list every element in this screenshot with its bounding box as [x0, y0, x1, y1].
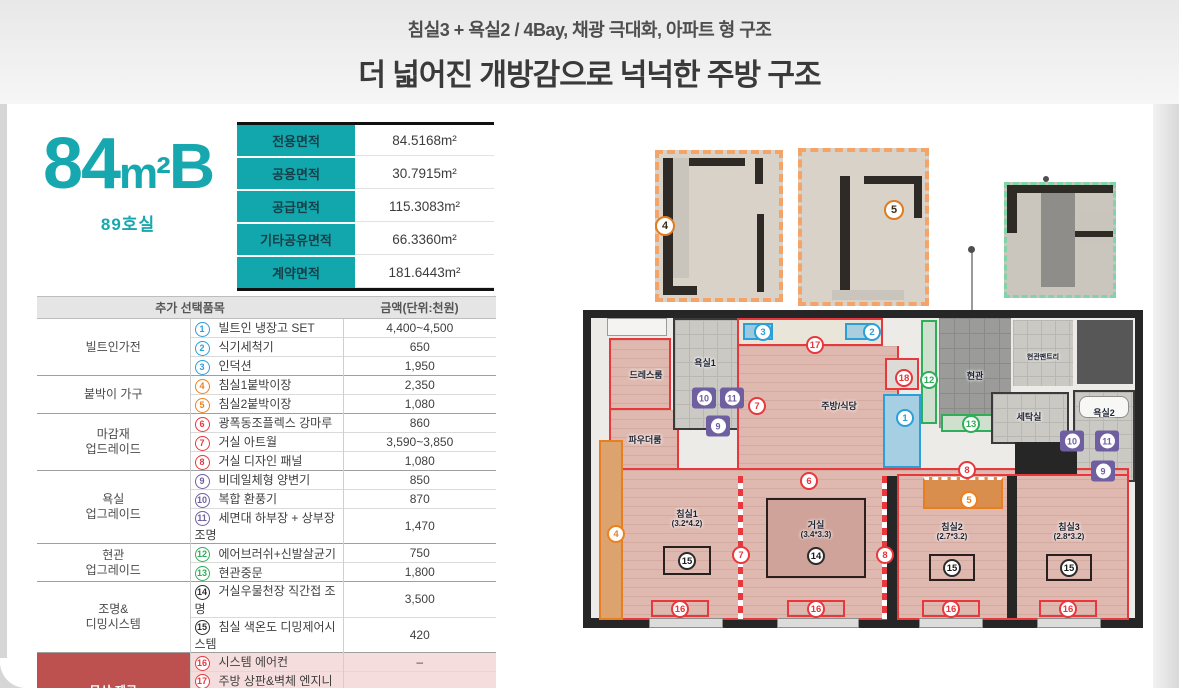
plan-marker-15: 15	[943, 559, 961, 577]
plan-marker-8: 8	[958, 461, 976, 479]
option-price: 650	[343, 338, 496, 357]
plan-marker-4: 4	[607, 525, 625, 543]
option-label: 시스템 에어컨	[219, 655, 289, 669]
option-item-cell: 9비데일체형 양변기	[190, 471, 343, 490]
plan-marker-13: 13	[962, 415, 980, 433]
pantry-detail-thumb	[1004, 182, 1116, 298]
marker-5-thumb: 5	[884, 200, 904, 220]
option-item-cell: 11세면대 하부장 + 상부장 조명	[190, 509, 343, 544]
option-price: 3,590~3,850	[343, 433, 496, 452]
page-title: 더 넓어진 개방감으로 넉넉한 주방 구조	[0, 50, 1179, 94]
option-item-cell: 1빌트인 냉장고 SET	[190, 319, 343, 338]
option-label: 침실2붙박이장	[219, 397, 292, 411]
area-table-row: 전용면적84.5168m²	[237, 125, 494, 156]
plan-marker-16: 16	[807, 600, 825, 618]
area-table-row: 기타공유면적66.3360m²	[237, 224, 494, 255]
option-number-badge: 2	[195, 341, 210, 356]
option-number-badge: 1	[195, 322, 210, 337]
option-group-label: 마감재 업드레이드	[37, 414, 190, 471]
option-price: 750	[343, 544, 496, 563]
option-price: 1,950	[343, 357, 496, 376]
plan-marker-1: 1	[896, 409, 914, 427]
option-price: –	[343, 652, 496, 671]
option-number-badge: 5	[195, 398, 210, 413]
option-item-cell: 13현관중문	[190, 563, 343, 582]
option-price: 1,080	[343, 452, 496, 471]
option-number-badge: 17	[195, 674, 210, 688]
plan-marker-17: 17	[806, 336, 824, 354]
option-number-badge: 6	[195, 417, 210, 432]
area-value: 30.7915m²	[355, 158, 494, 189]
option-row: 현관 업그레이드12에어브러쉬+신발살균기750	[37, 544, 496, 563]
option-price: 870	[343, 490, 496, 509]
option-number-badge: 8	[195, 455, 210, 470]
plan-marker-8: 8	[876, 546, 894, 564]
option-row: 붙박이 가구4침실1붙박이장2,350	[37, 376, 496, 395]
option-number-badge: 3	[195, 360, 210, 375]
option-label: 식기세척기	[219, 340, 274, 354]
option-number-badge: 14	[195, 585, 210, 600]
options-table-wrap: 추가 선택품목 금액(단위:천원) 빌트인가전1빌트인 냉장고 SET4,400…	[37, 296, 496, 688]
unit-size-unit: m²	[119, 149, 169, 198]
option-row: 조명& 디밍시스템14거실우물천장 직간접 조명3,500	[37, 582, 496, 617]
unit-size-type: B	[169, 130, 213, 202]
option-number-badge: 11	[195, 511, 210, 526]
closet-detail-thumb-bedroom2: 5	[798, 148, 929, 306]
page: { "header": { "subtitle": "침실3 + 욕실2 / 4…	[0, 0, 1179, 688]
unit-size: 84m²B	[28, 128, 228, 200]
area-label: 공용면적	[237, 158, 355, 189]
plan-marker-16: 16	[1059, 600, 1077, 618]
room-label: 현관팬트리	[1027, 354, 1059, 362]
area-table: 전용면적84.5168m²공용면적30.7915m²공급면적115.3083m²…	[237, 122, 494, 291]
unit-room-number: 89호실	[28, 210, 228, 235]
area-value: 181.6443m²	[355, 257, 494, 288]
option-group-label: 무상 제공 품목	[37, 652, 190, 688]
options-col-price-header: 금액(단위:천원)	[343, 297, 496, 319]
room-label: 주방/식당	[821, 401, 857, 411]
closet-detail-thumb-bedroom1: 4	[655, 150, 783, 302]
option-item-cell: 12에어브러쉬+신발살균기	[190, 544, 343, 563]
option-price: 860	[343, 414, 496, 433]
room-label: 거실(3.4*3.3)	[801, 520, 832, 540]
room-label: 세탁실	[1017, 412, 1042, 422]
option-item-cell: 8거실 디자인 패널	[190, 452, 343, 471]
option-label: 침실1붙박이장	[219, 378, 292, 392]
option-number-badge: 4	[195, 379, 210, 394]
plan-marker-10: 10	[1060, 431, 1084, 452]
option-price: 2,350	[343, 376, 496, 395]
option-label: 주방 상판&벽체 엔지니어드 스톤	[195, 674, 333, 688]
area-table-row: 계약면적181.6443m²	[237, 257, 494, 288]
unit-block: 84m²B 89호실	[28, 128, 228, 235]
room-label: 침실2(2.7*3.2)	[937, 522, 968, 542]
option-label: 광폭동조플렉스 강마루	[219, 416, 333, 430]
plan-marker-16: 16	[942, 600, 960, 618]
option-price: 850	[343, 471, 496, 490]
option-number-badge: 10	[195, 493, 210, 508]
option-row: 빌트인가전1빌트인 냉장고 SET4,400~4,500	[37, 319, 496, 338]
room-label: 현관	[967, 371, 984, 381]
option-label: 거실 디자인 패널	[219, 454, 303, 468]
option-item-cell: 14거실우물천장 직간접 조명	[190, 582, 343, 617]
option-item-cell: 4침실1붙박이장	[190, 376, 343, 395]
options-table: 추가 선택품목 금액(단위:천원) 빌트인가전1빌트인 냉장고 SET4,400…	[37, 296, 496, 688]
plan-marker-15: 15	[1060, 559, 1078, 577]
option-item-cell: 15침실 색온도 디밍제어시스템	[190, 617, 343, 652]
option-label: 빌트인 냉장고 SET	[219, 321, 315, 335]
header-subtitle: 침실3 + 욕실2 / 4Bay, 채광 극대화, 아파트 형 구조	[0, 16, 1179, 42]
option-price: 1,080	[343, 395, 496, 414]
option-number-badge: 12	[195, 547, 210, 562]
area-label: 전용면적	[237, 125, 355, 156]
option-item-cell: 7거실 아트월	[190, 433, 343, 452]
plan-marker-5: 5	[960, 491, 978, 509]
option-group-label: 욕실 업그레이드	[37, 471, 190, 544]
area-table-row: 공용면적30.7915m²	[237, 158, 494, 189]
area-table-row: 공급면적115.3083m²	[237, 191, 494, 222]
marker-4-thumb: 4	[655, 216, 675, 236]
option-label: 복합 환풍기	[219, 492, 278, 506]
option-label: 침실 색온도 디밍제어시스템	[195, 620, 336, 651]
option-item-cell: 3인덕션	[190, 357, 343, 376]
plan-marker-10: 10	[692, 388, 716, 409]
option-row: 무상 제공 품목16시스템 에어컨–	[37, 652, 496, 671]
pin-icon	[968, 246, 975, 253]
plan-marker-9: 9	[706, 416, 730, 437]
option-number-badge: 9	[195, 474, 210, 489]
option-item-cell: 2식기세척기	[190, 338, 343, 357]
option-item-cell: 16시스템 에어컨	[190, 652, 343, 671]
area-label: 계약면적	[237, 257, 355, 288]
option-price: 3,500	[343, 582, 496, 617]
room-label: 욕실2	[1093, 408, 1115, 418]
area-value: 115.3083m²	[355, 191, 494, 222]
option-price: 4,400~4,500	[343, 319, 496, 338]
plan-marker-7: 7	[732, 546, 750, 564]
option-number-badge: 16	[195, 656, 210, 671]
header-band: 침실3 + 욕실2 / 4Bay, 채광 극대화, 아파트 형 구조 더 넓어진…	[0, 0, 1179, 104]
option-group-label: 붙박이 가구	[37, 376, 190, 414]
plan-marker-11: 11	[720, 388, 744, 409]
plan-marker-6: 6	[800, 472, 818, 490]
pin-icon	[1043, 176, 1049, 182]
plan-marker-18: 18	[895, 369, 913, 387]
plan-marker-16: 16	[671, 600, 689, 618]
plan-marker-11: 11	[1095, 431, 1119, 452]
option-label: 세면대 하부장 + 상부장 조명	[195, 511, 335, 542]
option-number-badge: 7	[195, 436, 210, 451]
plan-marker-2: 2	[863, 323, 881, 341]
option-item-cell: 10복합 환풍기	[190, 490, 343, 509]
option-row: 마감재 업드레이드6광폭동조플렉스 강마루860	[37, 414, 496, 433]
option-price: 1,470	[343, 509, 496, 544]
plan-marker-14: 14	[807, 547, 825, 565]
option-number-badge: 13	[195, 566, 210, 581]
option-item-cell: 6광폭동조플렉스 강마루	[190, 414, 343, 433]
area-value: 66.3360m²	[355, 224, 494, 255]
room-label: 드레스룸	[629, 370, 662, 380]
option-group-label: 빌트인가전	[37, 319, 190, 376]
area-label: 기타공유면적	[237, 224, 355, 255]
option-price: –	[343, 671, 496, 688]
option-label: 비데일체형 양변기	[219, 473, 311, 487]
option-label: 거실우물천장 직간접 조명	[195, 584, 336, 615]
plan-marker-3: 3	[754, 323, 772, 341]
option-group-label: 현관 업그레이드	[37, 544, 190, 582]
plan-marker-12: 12	[920, 371, 938, 389]
floorplan: 3217181121371011910119647148851515151616…	[583, 310, 1143, 628]
option-label: 현관중문	[219, 566, 263, 580]
room-label: 파우더룸	[628, 435, 661, 445]
area-value: 84.5168m²	[355, 125, 494, 156]
option-item-cell: 5침실2붙박이장	[190, 395, 343, 414]
options-col-item-header: 추가 선택품목	[37, 297, 343, 319]
option-label: 인덕션	[219, 359, 252, 373]
option-item-cell: 17주방 상판&벽체 엔지니어드 스톤	[190, 671, 343, 688]
option-price: 420	[343, 617, 496, 652]
plan-marker-7: 7	[748, 397, 766, 415]
option-label: 거실 아트월	[219, 435, 278, 449]
area-label: 공급면적	[237, 191, 355, 222]
plan-marker-15: 15	[678, 552, 696, 570]
unit-size-number: 84	[43, 124, 119, 204]
option-group-label: 조명& 디밍시스템	[37, 582, 190, 653]
room-label: 침실3(2.8*3.2)	[1054, 522, 1085, 542]
room-label: 침실1(3.2*4.2)	[672, 509, 703, 529]
option-number-badge: 15	[195, 620, 210, 635]
room-label: 욕실1	[694, 358, 716, 368]
option-label: 에어브러쉬+신발살균기	[219, 547, 336, 561]
leader-line	[971, 252, 973, 310]
plan-marker-9: 9	[1091, 461, 1115, 482]
option-price: 1,800	[343, 563, 496, 582]
option-row: 욕실 업그레이드9비데일체형 양변기850	[37, 471, 496, 490]
